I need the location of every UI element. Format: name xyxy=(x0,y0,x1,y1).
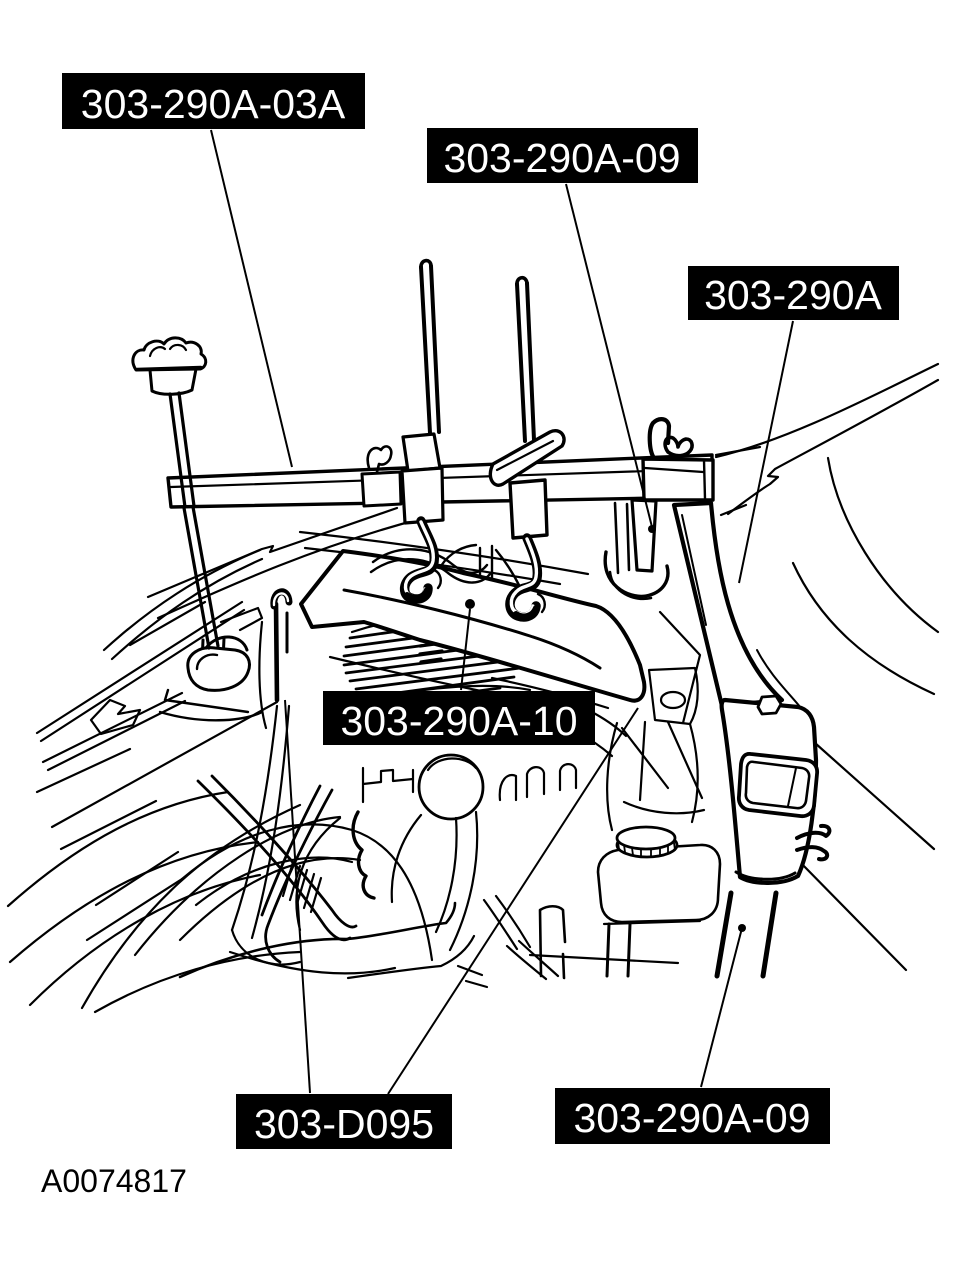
svg-text:303-290A-10: 303-290A-10 xyxy=(340,698,577,744)
svg-text:303-290A: 303-290A xyxy=(704,272,882,318)
svg-text:303-290A-09: 303-290A-09 xyxy=(443,135,680,181)
svg-text:A0074817: A0074817 xyxy=(41,1163,187,1199)
svg-text:303-D095: 303-D095 xyxy=(254,1101,434,1147)
svg-text:303-290A-03A: 303-290A-03A xyxy=(81,81,346,127)
svg-text:303-290A-09: 303-290A-09 xyxy=(573,1095,810,1141)
